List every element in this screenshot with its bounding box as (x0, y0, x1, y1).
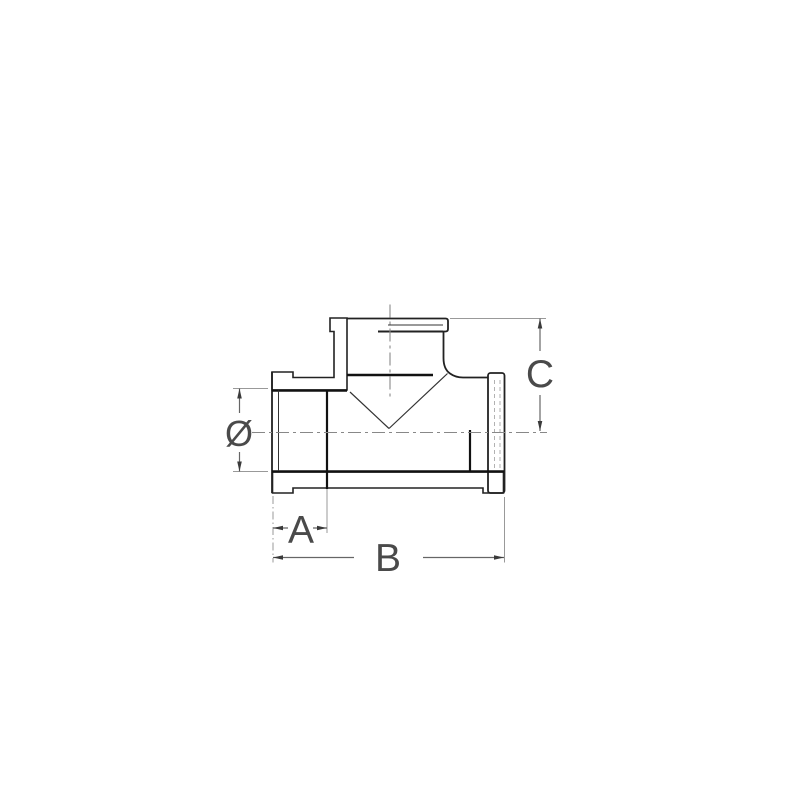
centerlines (252, 305, 547, 433)
branch-right-outline (347, 319, 488, 378)
dia-arrow-up (237, 389, 242, 399)
dimension-diameter: Ø (225, 389, 268, 472)
dim-label-c: C (526, 353, 554, 396)
bore-intersection-cone-right (389, 374, 448, 429)
fitting-section (272, 318, 505, 493)
dim-label-b: B (375, 537, 401, 580)
a-arrow-right (317, 526, 327, 531)
dim-label-a: A (288, 509, 314, 552)
bore-intersection-cone-left (350, 392, 389, 429)
dim-label-diameter: Ø (225, 413, 253, 454)
drawing-page: Ø A B C (0, 0, 800, 800)
bottom-wall-section (273, 472, 504, 493)
c-arrow-up (538, 319, 543, 329)
dimension-a: A (273, 489, 327, 563)
dimension-c: C (450, 319, 554, 432)
c-arrow-down (538, 421, 543, 431)
b-arrow-left (273, 555, 283, 560)
dia-arrow-down (237, 462, 242, 472)
a-arrow-left (273, 526, 283, 531)
b-arrow-right (494, 555, 504, 560)
tee-fitting-technical-drawing: Ø A B C (0, 0, 800, 800)
left-top-wall-section (272, 318, 347, 390)
